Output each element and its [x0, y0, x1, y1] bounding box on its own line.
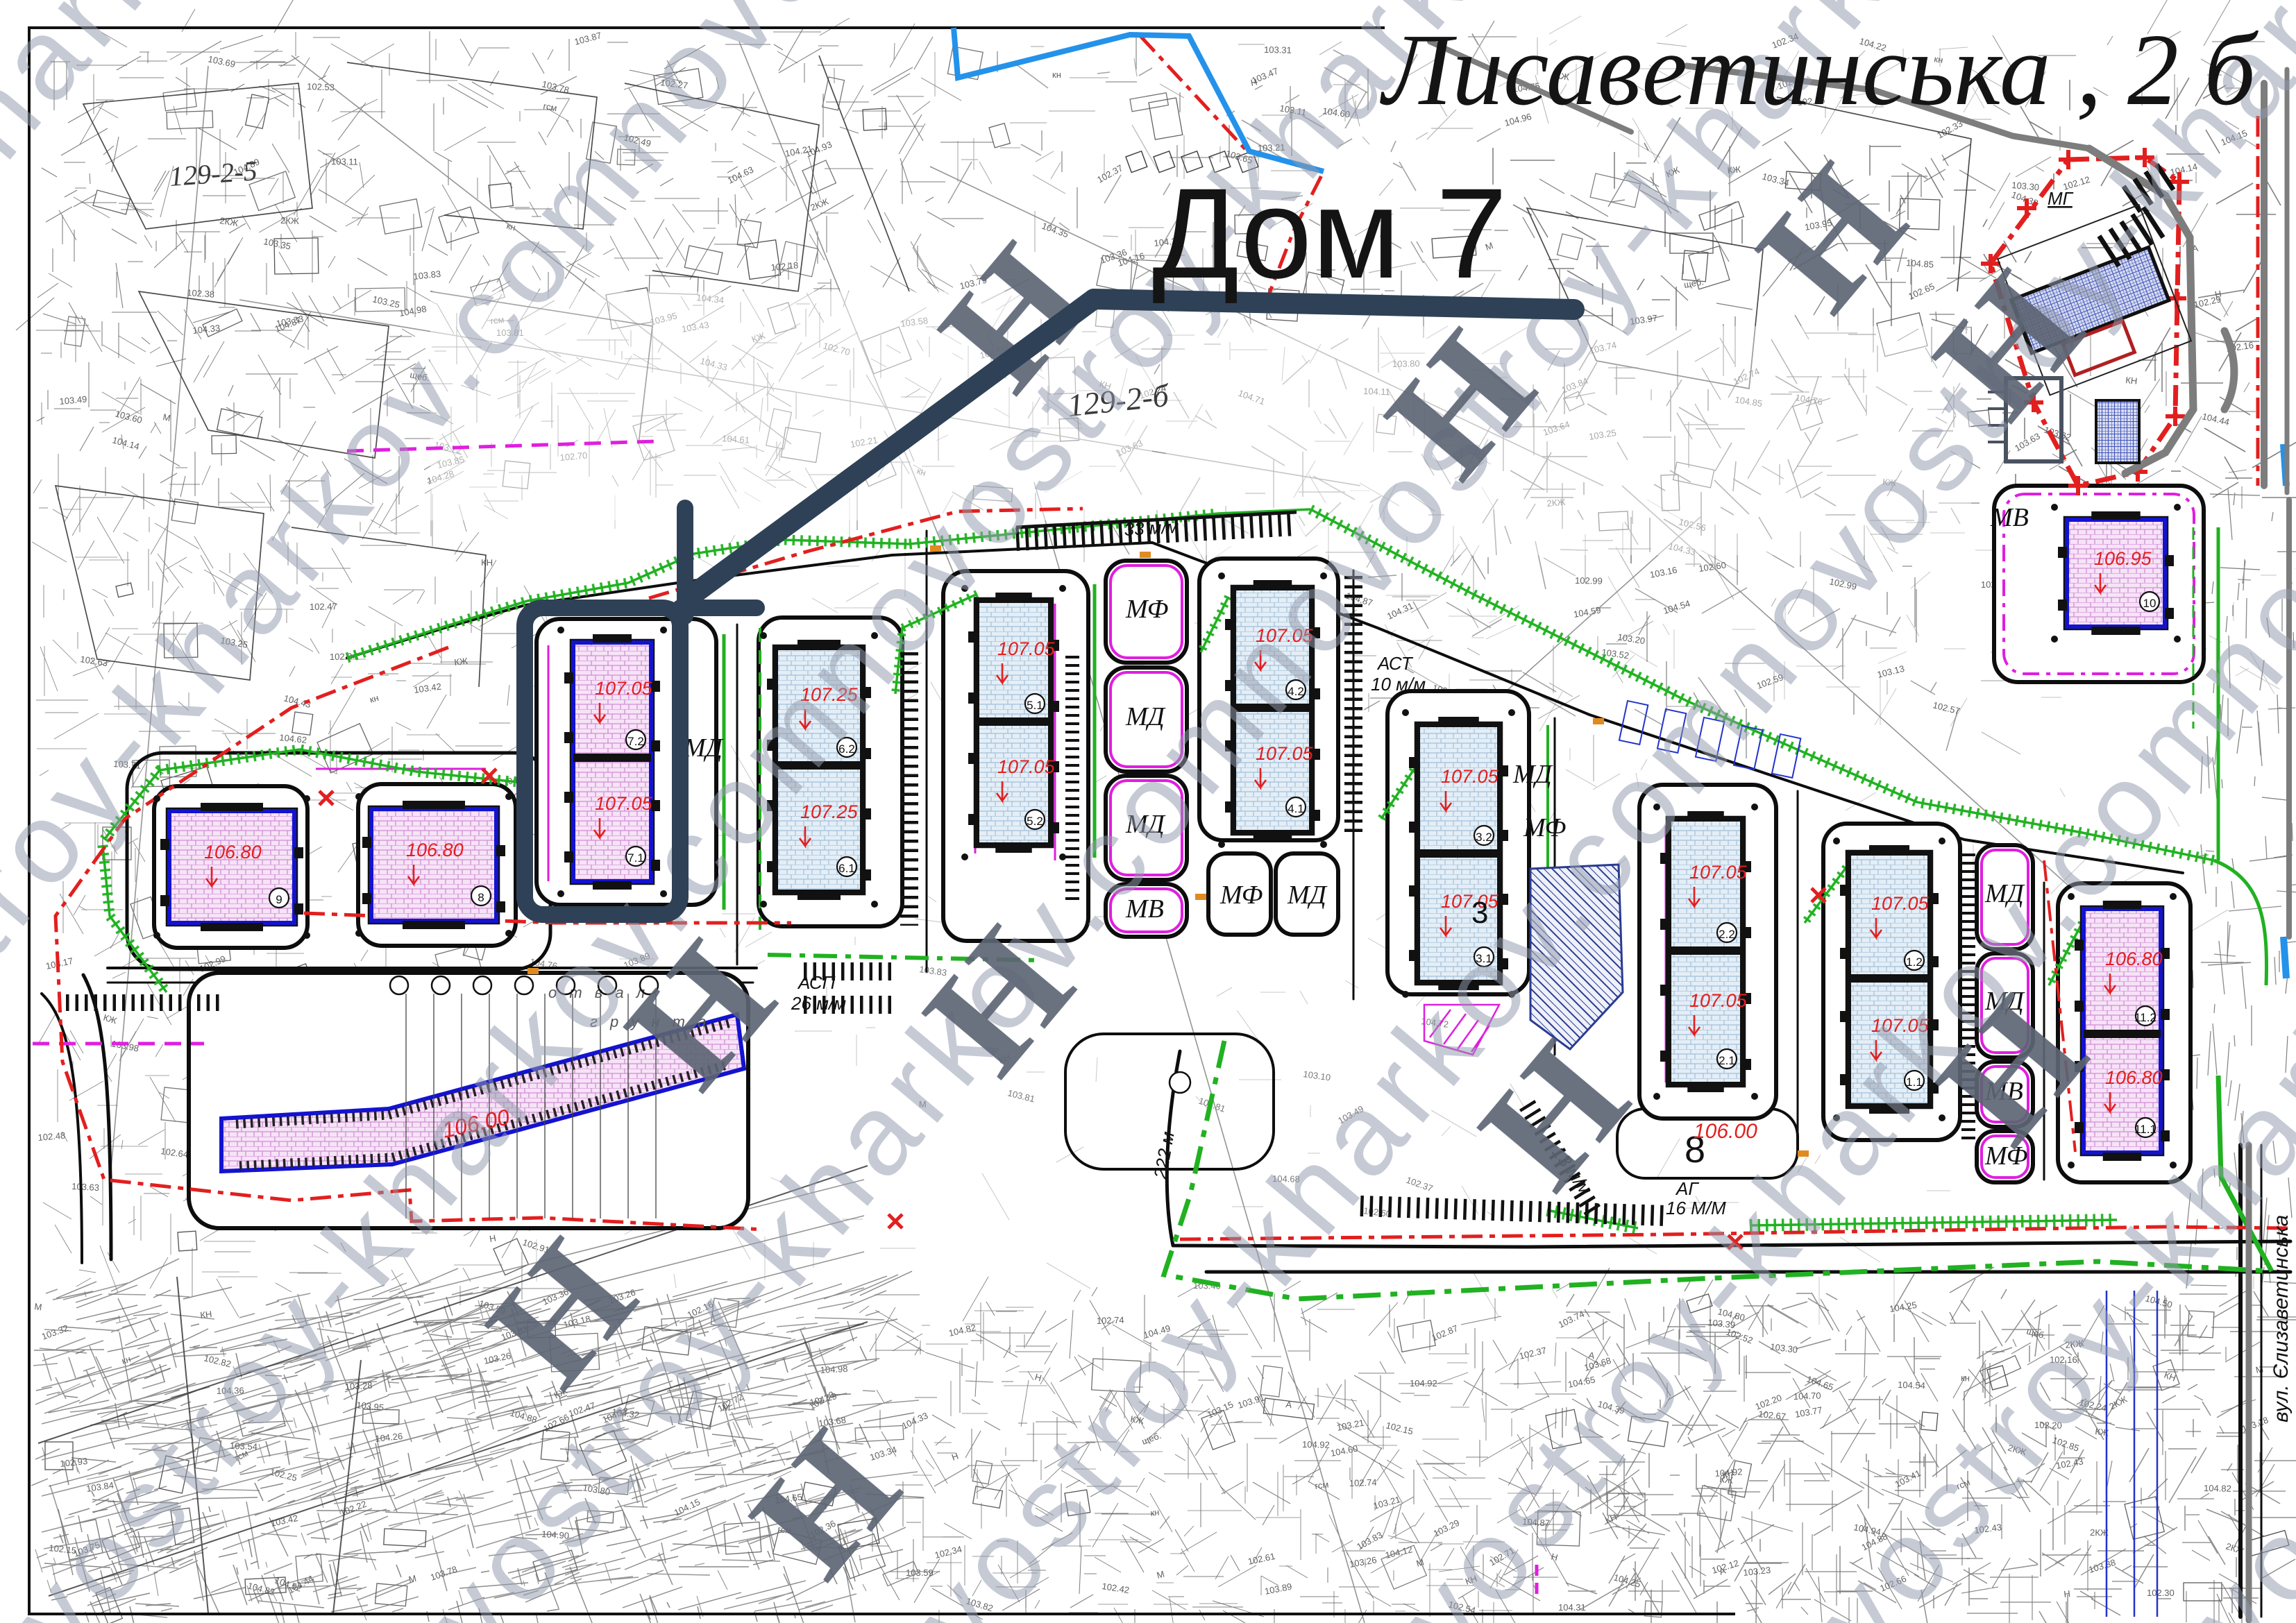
svg-text:кн: кн: [1052, 69, 1061, 80]
svg-text:107.05: 107.05: [1441, 766, 1499, 787]
svg-text:104.54: 104.54: [1898, 1379, 1925, 1391]
svg-text:102.74: 102.74: [1349, 1477, 1377, 1488]
svg-text:33 м/м: 33 м/м: [1124, 516, 1180, 540]
svg-text:10 м/м: 10 м/м: [1371, 674, 1426, 695]
svg-text:129-2-5: 129-2-5: [168, 155, 258, 192]
svg-text:М: М: [34, 1301, 43, 1312]
svg-text:11.2: 11.2: [2134, 1011, 2156, 1024]
svg-text:103.63: 103.63: [71, 1181, 99, 1193]
svg-text:Дом 7: Дом 7: [1152, 162, 1508, 305]
svg-text:103.11: 103.11: [331, 156, 358, 167]
svg-text:102.99: 102.99: [1575, 575, 1603, 586]
svg-text:КЖ: КЖ: [454, 656, 469, 668]
svg-text:МД: МД: [1512, 760, 1553, 789]
svg-text:102.38: 102.38: [187, 287, 215, 300]
svg-text:гсм: гсм: [1315, 1479, 1330, 1491]
svg-text:МФ: МФ: [1125, 595, 1168, 624]
svg-text:107.05: 107.05: [1689, 990, 1748, 1011]
svg-text:2КЖ: 2КЖ: [280, 215, 299, 226]
svg-text:МВ: МВ: [1990, 503, 2029, 532]
svg-text:10: 10: [2143, 597, 2156, 610]
svg-text:104.92: 104.92: [1410, 1378, 1437, 1388]
svg-text:МД: МД: [1287, 881, 1328, 910]
svg-text:104.92: 104.92: [1302, 1439, 1330, 1450]
svg-text:8: 8: [478, 891, 484, 904]
svg-text:МФ: МФ: [1219, 881, 1263, 910]
svg-text:106.80: 106.80: [406, 840, 464, 860]
svg-text:7.2: 7.2: [627, 735, 644, 748]
svg-text:107.05: 107.05: [997, 638, 1056, 659]
svg-text:107.05: 107.05: [997, 756, 1056, 777]
svg-text:3.2: 3.2: [1476, 831, 1492, 844]
svg-text:КН: КН: [2125, 375, 2138, 386]
svg-text:Лисаветинська , 2 б: Лисаветинська , 2 б: [1380, 13, 2259, 127]
svg-text:107.05: 107.05: [595, 678, 653, 699]
svg-text:104.82: 104.82: [2204, 1483, 2231, 1494]
svg-text:2.1: 2.1: [1719, 1054, 1735, 1067]
svg-text:АСП: АСП: [797, 972, 836, 993]
svg-text:106.00: 106.00: [1694, 1120, 1757, 1143]
svg-text:106.80: 106.80: [204, 842, 262, 863]
svg-text:9: 9: [276, 893, 282, 906]
svg-text:104.70: 104.70: [1793, 1391, 1821, 1402]
svg-text:4.1: 4.1: [1288, 802, 1304, 815]
svg-text:кн: кн: [1961, 1373, 1970, 1383]
svg-text:102.53: 102.53: [307, 81, 335, 92]
svg-text:106.95: 106.95: [2094, 548, 2152, 569]
svg-text:вул. Єлизаветинська: вул. Єлизаветинська: [2270, 1215, 2293, 1422]
svg-text:Н: Н: [2063, 1588, 2071, 1599]
svg-text:КН: КН: [481, 557, 493, 568]
svg-text:кн: кн: [1150, 1507, 1160, 1518]
svg-text:107.05: 107.05: [595, 793, 653, 814]
svg-text:107.05: 107.05: [1689, 862, 1748, 883]
svg-text:107.05: 107.05: [1871, 893, 1930, 914]
svg-text:6.1: 6.1: [838, 862, 855, 875]
svg-text:5.2: 5.2: [1027, 815, 1043, 828]
svg-text:АГ: АГ: [1675, 1178, 1699, 1199]
svg-text:5.1: 5.1: [1027, 699, 1043, 712]
svg-text:2.2: 2.2: [1719, 928, 1735, 941]
svg-text:26 м/м: 26 м/м: [791, 993, 846, 1014]
svg-text:11.1: 11.1: [2134, 1123, 2156, 1136]
svg-text:КН: КН: [200, 1309, 213, 1320]
svg-text:АСТ: АСТ: [1376, 653, 1414, 674]
svg-text:106.80: 106.80: [2105, 949, 2163, 969]
svg-text:104.31: 104.31: [1558, 1602, 1586, 1613]
